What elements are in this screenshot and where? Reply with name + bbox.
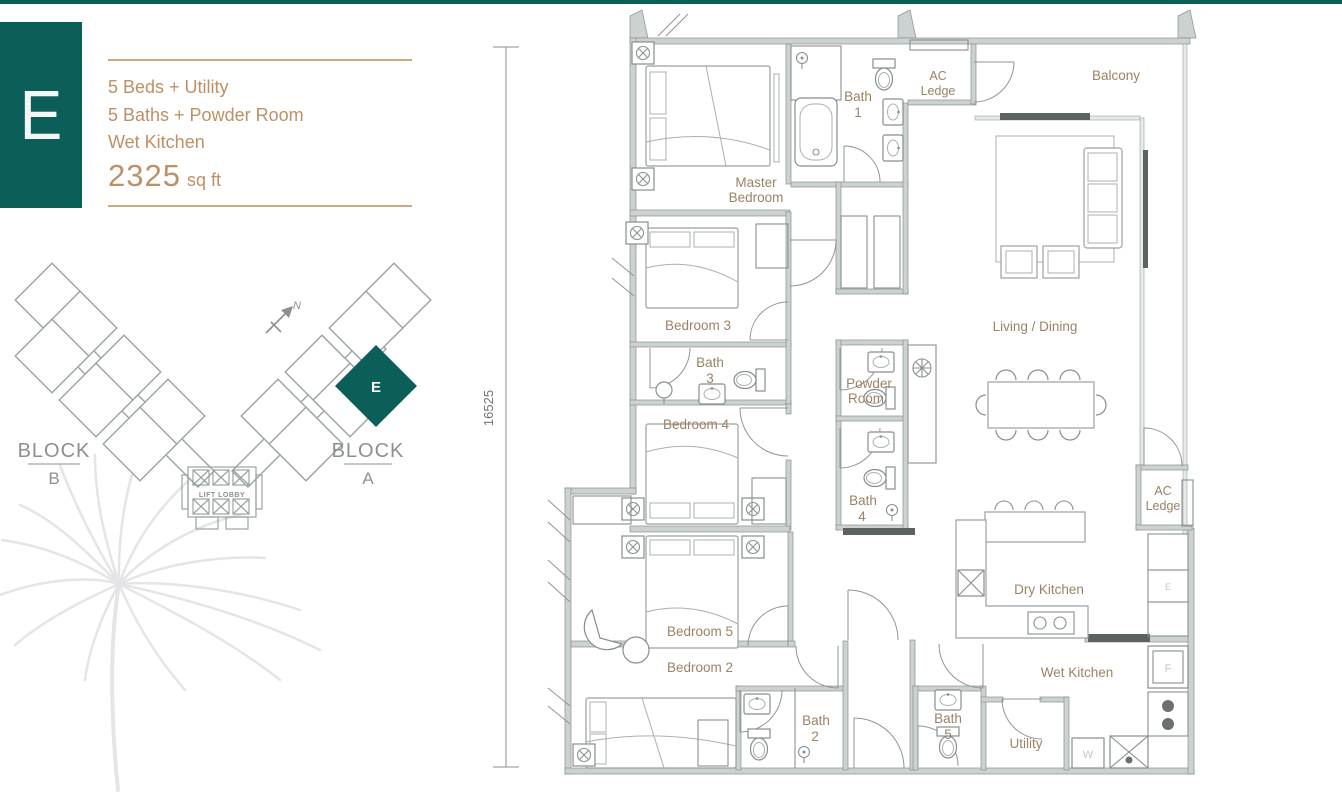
cabinet-letter: E <box>1165 582 1171 592</box>
floorplan-sheet: E 5 Beds + Utility 5 Baths + Powder Room… <box>0 0 1342 792</box>
dry-kitchen <box>956 501 1088 638</box>
label-bedroom4: Bedroom 4 <box>663 417 730 432</box>
block-b-letter: B <box>48 469 59 488</box>
watermark-palm-icon <box>0 450 320 790</box>
kitchen-sink-icon <box>958 570 984 596</box>
floor-plan: E F W <box>548 10 1196 774</box>
dimension-value: 16525 <box>481 390 496 426</box>
living-dining <box>976 136 1122 440</box>
label-bedroom3: Bedroom 3 <box>665 318 731 333</box>
shower-head-icon <box>799 747 810 764</box>
label-ac-ledge-right-2: Ledge <box>1146 499 1181 513</box>
shower-head-icon <box>797 53 808 70</box>
unit-badge: E <box>0 22 82 208</box>
wet-kitchen-fixtures: E F W <box>1072 534 1188 768</box>
block-b-label: BLOCK B <box>18 440 91 488</box>
bed-icon <box>646 228 738 308</box>
unit-area: 2325sq ft <box>108 158 221 194</box>
label-ac-ledge-right-1: AC <box>1154 484 1171 498</box>
walk-in-wardrobe <box>841 216 900 288</box>
area-value: 2325 <box>108 158 181 193</box>
nightstand-icon <box>573 744 595 766</box>
label-bath4-1: Bath <box>849 493 877 508</box>
sink-icon <box>935 690 961 710</box>
key-plan: E N <box>15 263 431 529</box>
toilet-icon <box>734 369 765 391</box>
toilet-icon <box>864 467 895 489</box>
toilet-icon <box>873 59 895 90</box>
washer-letter: W <box>1083 749 1094 761</box>
label-dry-kitchen: Dry Kitchen <box>1014 582 1084 597</box>
label-bath2-2: 2 <box>811 729 819 744</box>
nightstand-icon <box>622 536 644 558</box>
island-counter-icon <box>985 512 1085 542</box>
sink-icon <box>868 352 894 372</box>
stool-icon <box>1025 501 1043 510</box>
header-divider-top <box>108 59 412 61</box>
sink-icon <box>883 135 903 161</box>
toilet-icon <box>748 729 770 760</box>
north-arrow-icon: N <box>266 300 301 333</box>
side-table-icon <box>623 637 649 663</box>
bedroom-3 <box>626 222 788 308</box>
dimension-line: 16525 <box>481 47 519 767</box>
wardrobe-icon <box>756 224 788 268</box>
nightstand-icon <box>742 536 764 558</box>
bed-icon <box>646 66 770 166</box>
duct-shaft <box>908 345 936 463</box>
label-powder-1: Powder <box>846 376 892 391</box>
master-bedroom <box>632 42 779 190</box>
block-a-label: BLOCK A <box>332 440 405 488</box>
feature-baths: 5 Baths + Powder Room <box>108 105 304 126</box>
fridge-letter: F <box>1165 663 1172 675</box>
bath-1 <box>791 46 903 166</box>
header-divider-bottom <box>108 205 412 207</box>
label-bath1-2: 1 <box>854 105 862 120</box>
stool-icon <box>995 501 1013 510</box>
unit-letter: E <box>20 80 63 149</box>
label-bath5-1: Bath <box>934 711 962 726</box>
feature-beds: 5 Beds + Utility <box>108 77 229 98</box>
block-a-letter: A <box>362 469 374 488</box>
label-balcony: Balcony <box>1092 68 1140 83</box>
fan-icon <box>913 359 931 377</box>
dining-table-icon <box>976 370 1106 440</box>
nightstand-icon <box>632 42 654 64</box>
washer-icon: W <box>1072 738 1104 768</box>
sink-icon <box>744 694 770 714</box>
sink-icon <box>868 432 894 452</box>
bed-icon <box>646 424 738 524</box>
label-bath5-2: 5 <box>944 727 952 742</box>
bedroom-2 <box>573 698 736 768</box>
feature-kitchen: Wet Kitchen <box>108 132 205 153</box>
unit-marker-letter: E <box>371 379 381 396</box>
label-bath3-1: Bath <box>696 355 724 370</box>
shower-head-icon <box>887 505 898 522</box>
nightstand-icon <box>626 222 648 244</box>
sofa-icon <box>1084 148 1122 248</box>
label-living-dining: Living / Dining <box>993 319 1078 334</box>
lift-lobby-label: LIFT LOBBY <box>199 492 245 499</box>
label-bath2-1: Bath <box>802 713 830 728</box>
label-bath1-1: Bath <box>844 89 872 104</box>
bedroom-4 <box>622 424 786 524</box>
label-powder-2: Room <box>848 391 884 406</box>
pedestal-sink-icon <box>656 382 672 398</box>
ac-louvre-icons <box>910 40 1193 526</box>
label-bedroom5: Bedroom 5 <box>667 624 733 639</box>
nightstand-icon <box>632 168 654 190</box>
nightstand-icon <box>742 498 764 520</box>
north-letter: N <box>293 300 301 312</box>
label-master-bedroom-1: Master <box>735 175 777 190</box>
label-bath4-2: 4 <box>858 509 866 524</box>
top-accent-bar <box>0 0 1342 4</box>
label-utility: Utility <box>1010 736 1043 751</box>
stove-icon <box>1148 692 1188 736</box>
curtain-icon <box>774 74 779 162</box>
fridge-icon: F <box>1148 646 1188 688</box>
label-wet-kitchen: Wet Kitchen <box>1041 665 1114 680</box>
area-unit: sq ft <box>187 170 221 190</box>
bath-2 <box>744 688 810 768</box>
stool-icon <box>1055 501 1073 510</box>
label-bath3-2: 3 <box>706 371 714 386</box>
label-ac-ledge-top-2: Ledge <box>921 84 956 98</box>
block-a-word: BLOCK <box>332 440 405 462</box>
label-ac-ledge-top-1: AC <box>929 69 946 83</box>
nightstand-icon <box>622 498 644 520</box>
label-master-bedroom-2: Bedroom <box>729 190 784 205</box>
wet-kitchen-sink-icon <box>1110 736 1148 768</box>
label-bedroom2: Bedroom 2 <box>667 660 733 675</box>
bed-icon <box>586 698 736 768</box>
block-b-word: BLOCK <box>18 440 91 462</box>
sink-icon <box>699 384 725 404</box>
bathtub-icon <box>795 98 837 166</box>
sink-icon <box>883 99 903 125</box>
